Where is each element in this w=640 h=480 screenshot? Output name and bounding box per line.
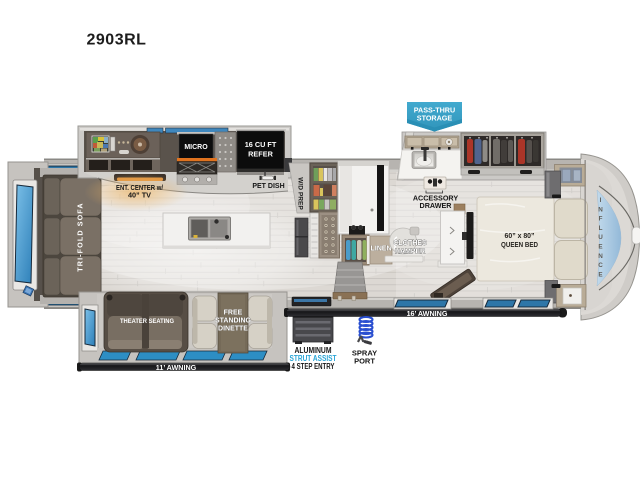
svg-text:MICRO: MICRO <box>184 144 208 151</box>
svg-text:INFLUENCE: INFLUENCE <box>598 197 603 278</box>
svg-text:16’ AWNING: 16’ AWNING <box>407 309 448 318</box>
svg-text:4 STEP ENTRY: 4 STEP ENTRY <box>292 362 336 371</box>
svg-text:STORAGE: STORAGE <box>417 113 453 122</box>
svg-text:2903RL: 2903RL <box>87 32 147 49</box>
svg-text:TRI-FOLD SOFA: TRI-FOLD SOFA <box>76 202 85 271</box>
svg-text:THEATER SEATING: THEATER SEATING <box>120 318 174 325</box>
svg-text:W/D PREP: W/D PREP <box>297 177 304 210</box>
svg-text:PORT: PORT <box>354 357 375 366</box>
svg-text:FREE: FREE <box>224 310 243 317</box>
svg-text:60” x 80”: 60” x 80” <box>505 231 535 240</box>
svg-text:QUEEN BED: QUEEN BED <box>501 240 538 249</box>
svg-text:DINETTE: DINETTE <box>218 325 248 332</box>
svg-text:40” TV: 40” TV <box>128 191 151 200</box>
svg-text:CLOTHES: CLOTHES <box>393 240 427 247</box>
svg-text:11’ AWNING: 11’ AWNING <box>156 363 197 372</box>
svg-text:DRAWER: DRAWER <box>420 201 453 210</box>
svg-text:REFER: REFER <box>248 150 273 159</box>
svg-text:LINEN: LINEN <box>371 246 392 253</box>
svg-text:16 CU FT: 16 CU FT <box>245 140 277 149</box>
svg-text:PET DISH: PET DISH <box>252 183 284 190</box>
svg-text:STANDING: STANDING <box>215 317 252 324</box>
svg-text:HAMPER: HAMPER <box>395 249 425 256</box>
